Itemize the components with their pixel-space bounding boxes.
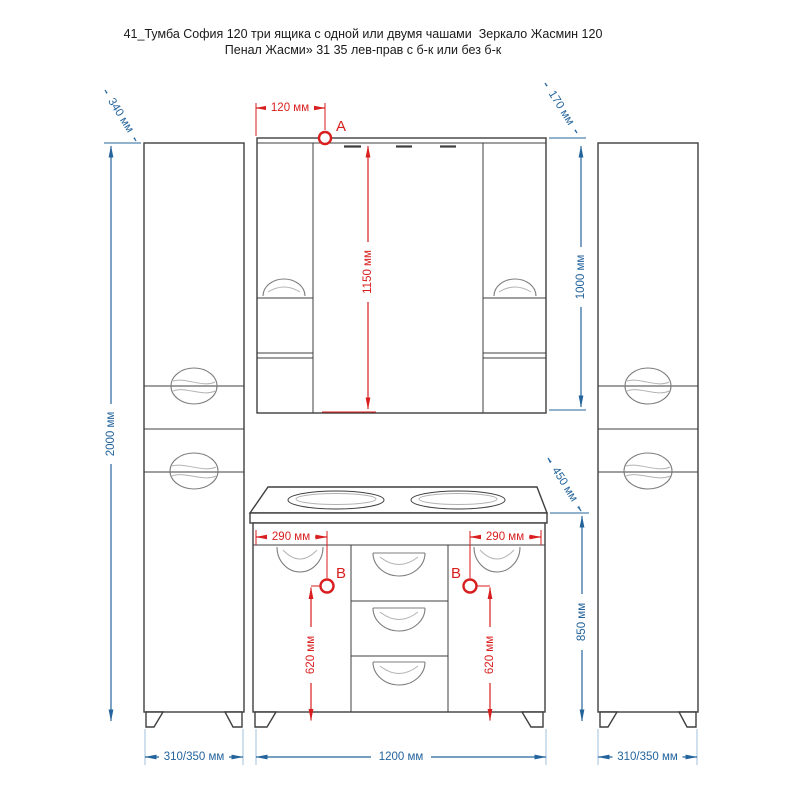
dimension-cabinet-height-2000: 2000 мм: [103, 143, 141, 721]
countertop-top: [250, 487, 547, 513]
dimension-label: 290 мм: [486, 531, 524, 543]
dimension-point-a-offset-120: 120 мм: [256, 101, 325, 137]
dimension-mirror-height-1000: 1000 мм: [549, 138, 589, 410]
dimension-left-cabinet-width: 310/350 мм: [145, 749, 243, 765]
point-b-left-label: B: [336, 565, 346, 582]
dimension-right-cabinet-width: 310/350 мм: [598, 749, 697, 765]
dimension-label: 310/350 мм: [164, 751, 225, 763]
title-line-1: 41_Тумба София 120 три ящика с одной или…: [124, 27, 603, 41]
cabinet-leg: [146, 712, 163, 727]
cabinet-leg: [679, 712, 696, 727]
dimension-label: 310/350 мм: [617, 751, 678, 763]
dimension-label: 2000 мм: [105, 412, 117, 457]
title-line-2: Пенал Жасми» 31 35 лев-прав с б-к или бе…: [225, 43, 502, 57]
dimension-cabinet-depth-340: 340 мм: [100, 89, 140, 141]
cabinet-leg: [225, 712, 242, 727]
dimension-label: 850 мм: [576, 603, 588, 641]
mirror-cabinet: [257, 138, 546, 413]
furniture-drawing-page: 41_Тумба София 120 три ящика с одной или…: [0, 0, 800, 800]
dimension-label: 290 мм: [272, 531, 310, 543]
left-tall-cabinet: [144, 143, 244, 727]
drawing-title: 41_Тумба София 120 три ящика с одной или…: [124, 27, 603, 57]
dimension-countertop-depth-450: 450 мм: [544, 458, 584, 511]
countertop-edge: [250, 513, 547, 523]
dimension-label: 1200 мм: [379, 751, 424, 763]
dimension-vanity-width-1200: 1200 мм: [256, 749, 546, 765]
dimension-mirror-shelf-depth-170: 170 мм: [541, 82, 581, 134]
point-a-label: A: [336, 118, 346, 135]
cabinet-leg: [522, 712, 543, 727]
dimension-label: 1000 мм: [575, 255, 587, 300]
dimension-label: 620 мм: [484, 636, 496, 674]
point-b-right-label: B: [451, 565, 461, 582]
right-tall-cabinet: [598, 143, 698, 727]
cabinet-leg: [600, 712, 617, 727]
cabinet-leg: [255, 712, 276, 727]
furniture-drawing: 41_Тумба София 120 три ящика с одной или…: [0, 0, 800, 800]
dimension-vanity-height-850: 850 мм: [550, 513, 590, 721]
dimension-label: 620 мм: [305, 636, 317, 674]
dimension-label: 1150 мм: [362, 250, 374, 294]
dimension-label: 120 мм: [271, 102, 309, 114]
vanity-cabinet: [250, 487, 547, 727]
